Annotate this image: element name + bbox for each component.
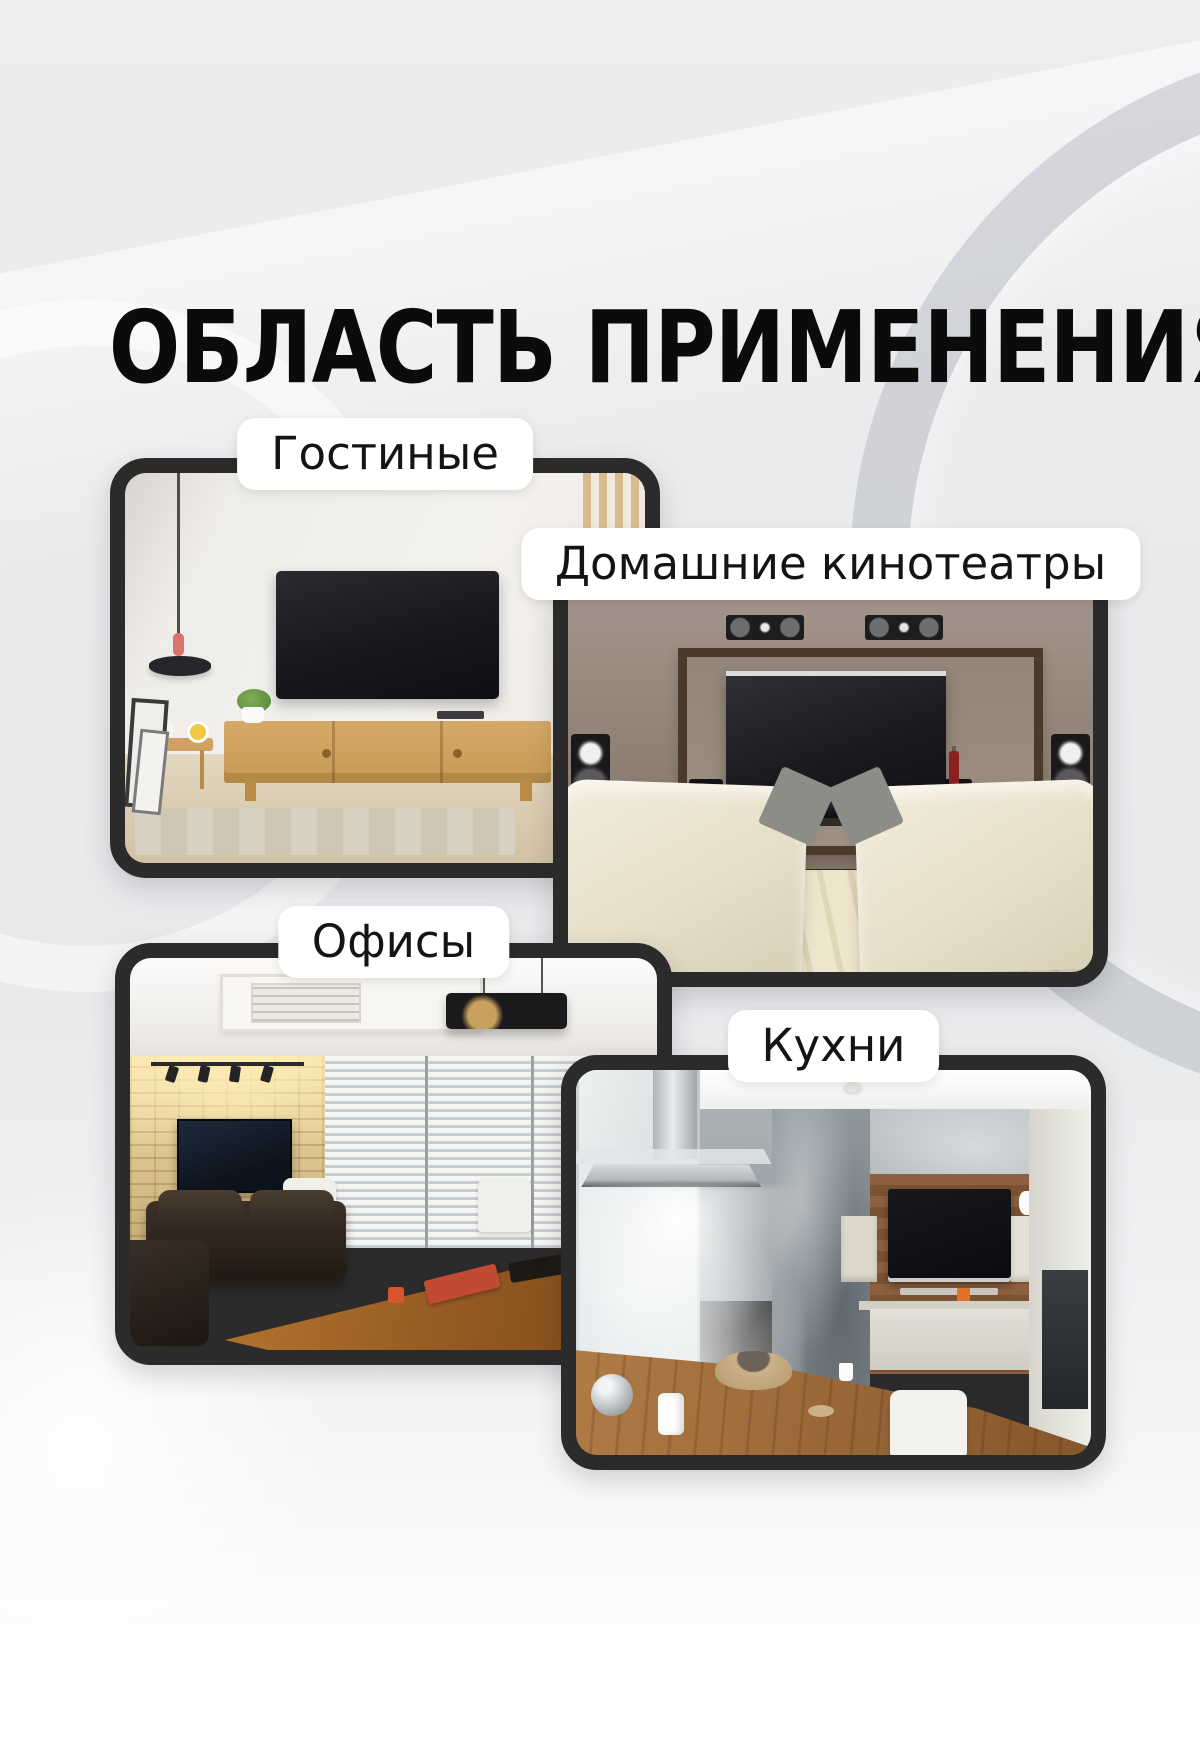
ceiling-spot xyxy=(844,1082,862,1092)
white-chair xyxy=(890,1390,967,1455)
leather-armchair xyxy=(130,1240,209,1346)
plant-pot xyxy=(242,707,264,723)
sideboard-leg xyxy=(245,781,256,801)
tv-screen xyxy=(177,1119,292,1194)
sideboard-knob xyxy=(453,749,462,758)
label-home-theaters: Домашние кинотеатры xyxy=(521,528,1140,600)
label-home-theaters-text: Домашние кинотеатры xyxy=(555,541,1106,587)
hood-chimney xyxy=(653,1070,697,1159)
sofa-cushion xyxy=(250,1190,334,1235)
white-cup xyxy=(839,1363,853,1381)
lamp-cord-red xyxy=(173,633,184,656)
light-wire xyxy=(541,958,543,997)
label-living-rooms: Гостиные xyxy=(237,418,533,490)
wooden-sideboard xyxy=(224,721,552,783)
pendant-lamp xyxy=(149,656,211,676)
orange-box xyxy=(957,1288,970,1301)
label-offices: Офисы xyxy=(278,906,509,978)
shelf-cabinet-left xyxy=(841,1216,877,1281)
side-table-leg xyxy=(200,750,204,789)
window-mullion xyxy=(425,1056,428,1248)
label-kitchens-text: Кухни xyxy=(762,1023,906,1069)
white-chair xyxy=(478,1178,531,1233)
cup xyxy=(388,1287,404,1303)
hood-glass-visor xyxy=(576,1149,772,1164)
sideboard-seam xyxy=(332,721,335,783)
remote-tray xyxy=(437,711,484,719)
red-bottle xyxy=(949,751,959,785)
lamp-cord xyxy=(177,473,180,633)
lower-cabinet xyxy=(870,1309,1030,1371)
center-speaker xyxy=(865,615,944,640)
paper-towel-roll xyxy=(658,1393,684,1435)
built-in-appliance xyxy=(1042,1270,1088,1409)
coaster xyxy=(808,1405,834,1417)
bowl xyxy=(715,1351,792,1390)
label-offices-text: Офисы xyxy=(312,919,475,965)
window-mullion xyxy=(531,1056,534,1248)
center-speaker xyxy=(726,615,805,640)
photo-card-kitchens: Кухни xyxy=(561,1055,1106,1470)
projection-screen xyxy=(726,671,947,798)
tv-shelf xyxy=(900,1288,998,1296)
tv-screen xyxy=(888,1189,1012,1281)
infographic-canvas: ОБЛАСТЬ ПРИМЕНЕНИЯ xyxy=(0,0,1200,1760)
air-conditioner xyxy=(251,983,360,1022)
page-title: ОБЛАСТЬ ПРИМЕНЕНИЯ xyxy=(0,298,1200,398)
sideboard-seam xyxy=(440,721,443,783)
photo-home-theaters xyxy=(568,562,1093,972)
hanging-light xyxy=(446,993,567,1028)
label-living-rooms-text: Гостиные xyxy=(271,431,499,477)
sideboard-knob xyxy=(322,749,331,758)
label-kitchens: Кухни xyxy=(728,1010,940,1082)
rug xyxy=(135,808,515,855)
sideboard-leg xyxy=(520,781,531,801)
sofa-cushion xyxy=(158,1190,242,1235)
table-clock xyxy=(187,721,209,743)
photo-kitchens xyxy=(576,1070,1091,1455)
range-hood xyxy=(581,1164,761,1187)
tv-screen xyxy=(276,571,500,700)
photo-card-home-theaters: Домашние кинотеатры xyxy=(553,547,1108,987)
page-title-text: ОБЛАСТЬ ПРИМЕНЕНИЯ xyxy=(109,298,1200,398)
